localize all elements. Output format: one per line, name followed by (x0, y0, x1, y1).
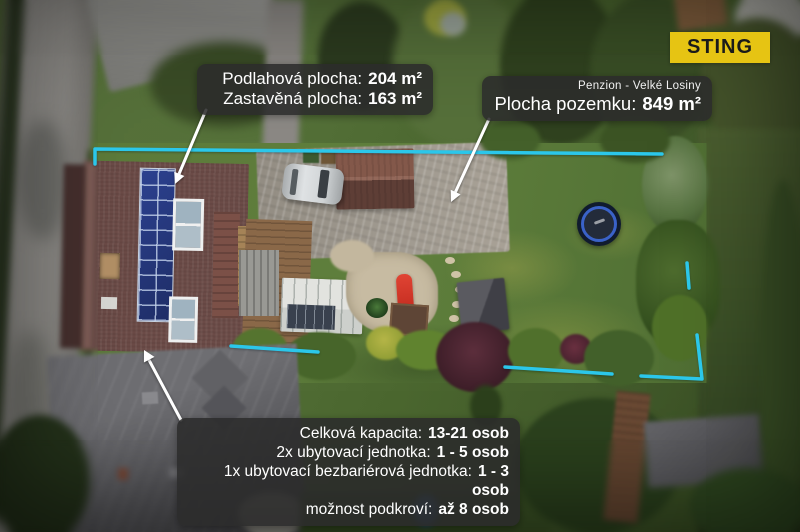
capacity-label: možnost podkroví: (306, 501, 433, 518)
round-pool (440, 12, 466, 36)
bush (652, 295, 708, 361)
capacity-label: 2x ubytovací jednotka: (276, 444, 430, 461)
capacity-value: 1 - 3 osob (472, 463, 509, 499)
waste-bins (321, 151, 336, 164)
purple-bush (436, 322, 514, 392)
built-up-area-line: Zastavěná plocha:163 m² (208, 89, 422, 109)
capacity-label: Celková kapacita: (300, 425, 422, 442)
roof-window (142, 392, 159, 405)
built-up-area-label: Zastavěná plocha: (223, 89, 362, 108)
plot-area-line: Plocha pozemku:849 m² (493, 93, 701, 115)
stepping-stone (445, 257, 455, 264)
pergola-roof (239, 250, 279, 316)
tree-top (600, 118, 670, 163)
stepping-stone (449, 315, 459, 322)
dark-trees (690, 468, 800, 532)
plot-area-value: 849 m² (642, 93, 701, 114)
annex-roof (212, 212, 240, 318)
greenhouse-solar-panel (287, 304, 336, 330)
green-basin (366, 298, 388, 318)
floor-area-label: Podlahová plocha: (222, 69, 362, 88)
capacity-value: 13-21 osob (428, 425, 509, 442)
bush (508, 328, 564, 374)
trampoline-rim (581, 206, 617, 242)
capacity-line: 1x ubytovací bezbariérová jednotka:1 - 3… (188, 462, 509, 500)
capacity-box: Celková kapacita:13-21 osob 2x ubytovací… (177, 418, 520, 526)
skylight-window (172, 198, 204, 251)
waste-bins (303, 150, 319, 163)
bush (480, 120, 540, 160)
capacity-line: 2x ubytovací jednotka:1 - 5 osob (188, 443, 509, 462)
roof-vent (101, 297, 117, 309)
floor-area-box: Podlahová plocha:204 m² Zastavěná plocha… (197, 64, 433, 115)
stepping-stone (451, 271, 461, 278)
capacity-label: 1x ubytovací bezbariérová jednotka: (224, 463, 472, 480)
gravel-patch (330, 240, 374, 272)
real-estate-aerial-listing: Podlahová plocha:204 m² Zastavěná plocha… (0, 0, 800, 532)
bush (584, 330, 654, 386)
road-patch (18, 120, 68, 240)
sting-logo-text: STING (687, 36, 753, 59)
garden-shed-roof (335, 148, 414, 209)
chimney (100, 253, 121, 279)
floor-area-line: Podlahová plocha:204 m² (208, 69, 422, 89)
capacity-line: Celková kapacita:13-21 osob (188, 424, 509, 443)
capacity-value: až 8 osob (438, 501, 509, 518)
sting-logo: STING (670, 32, 770, 63)
skylight-window (168, 296, 198, 343)
plot-area-label: Plocha pozemku: (494, 93, 636, 114)
capacity-value: 1 - 5 osob (437, 444, 509, 461)
capacity-line: možnost podkroví:až 8 osob (188, 500, 509, 519)
plot-area-box: Penzion - Velké Losiny Plocha pozemku:84… (482, 76, 712, 121)
chimney (118, 468, 128, 480)
built-up-area-value: 163 m² (368, 89, 422, 108)
floor-area-value: 204 m² (368, 69, 422, 88)
plot-subtitle: Penzion - Velké Losiny (493, 80, 701, 93)
